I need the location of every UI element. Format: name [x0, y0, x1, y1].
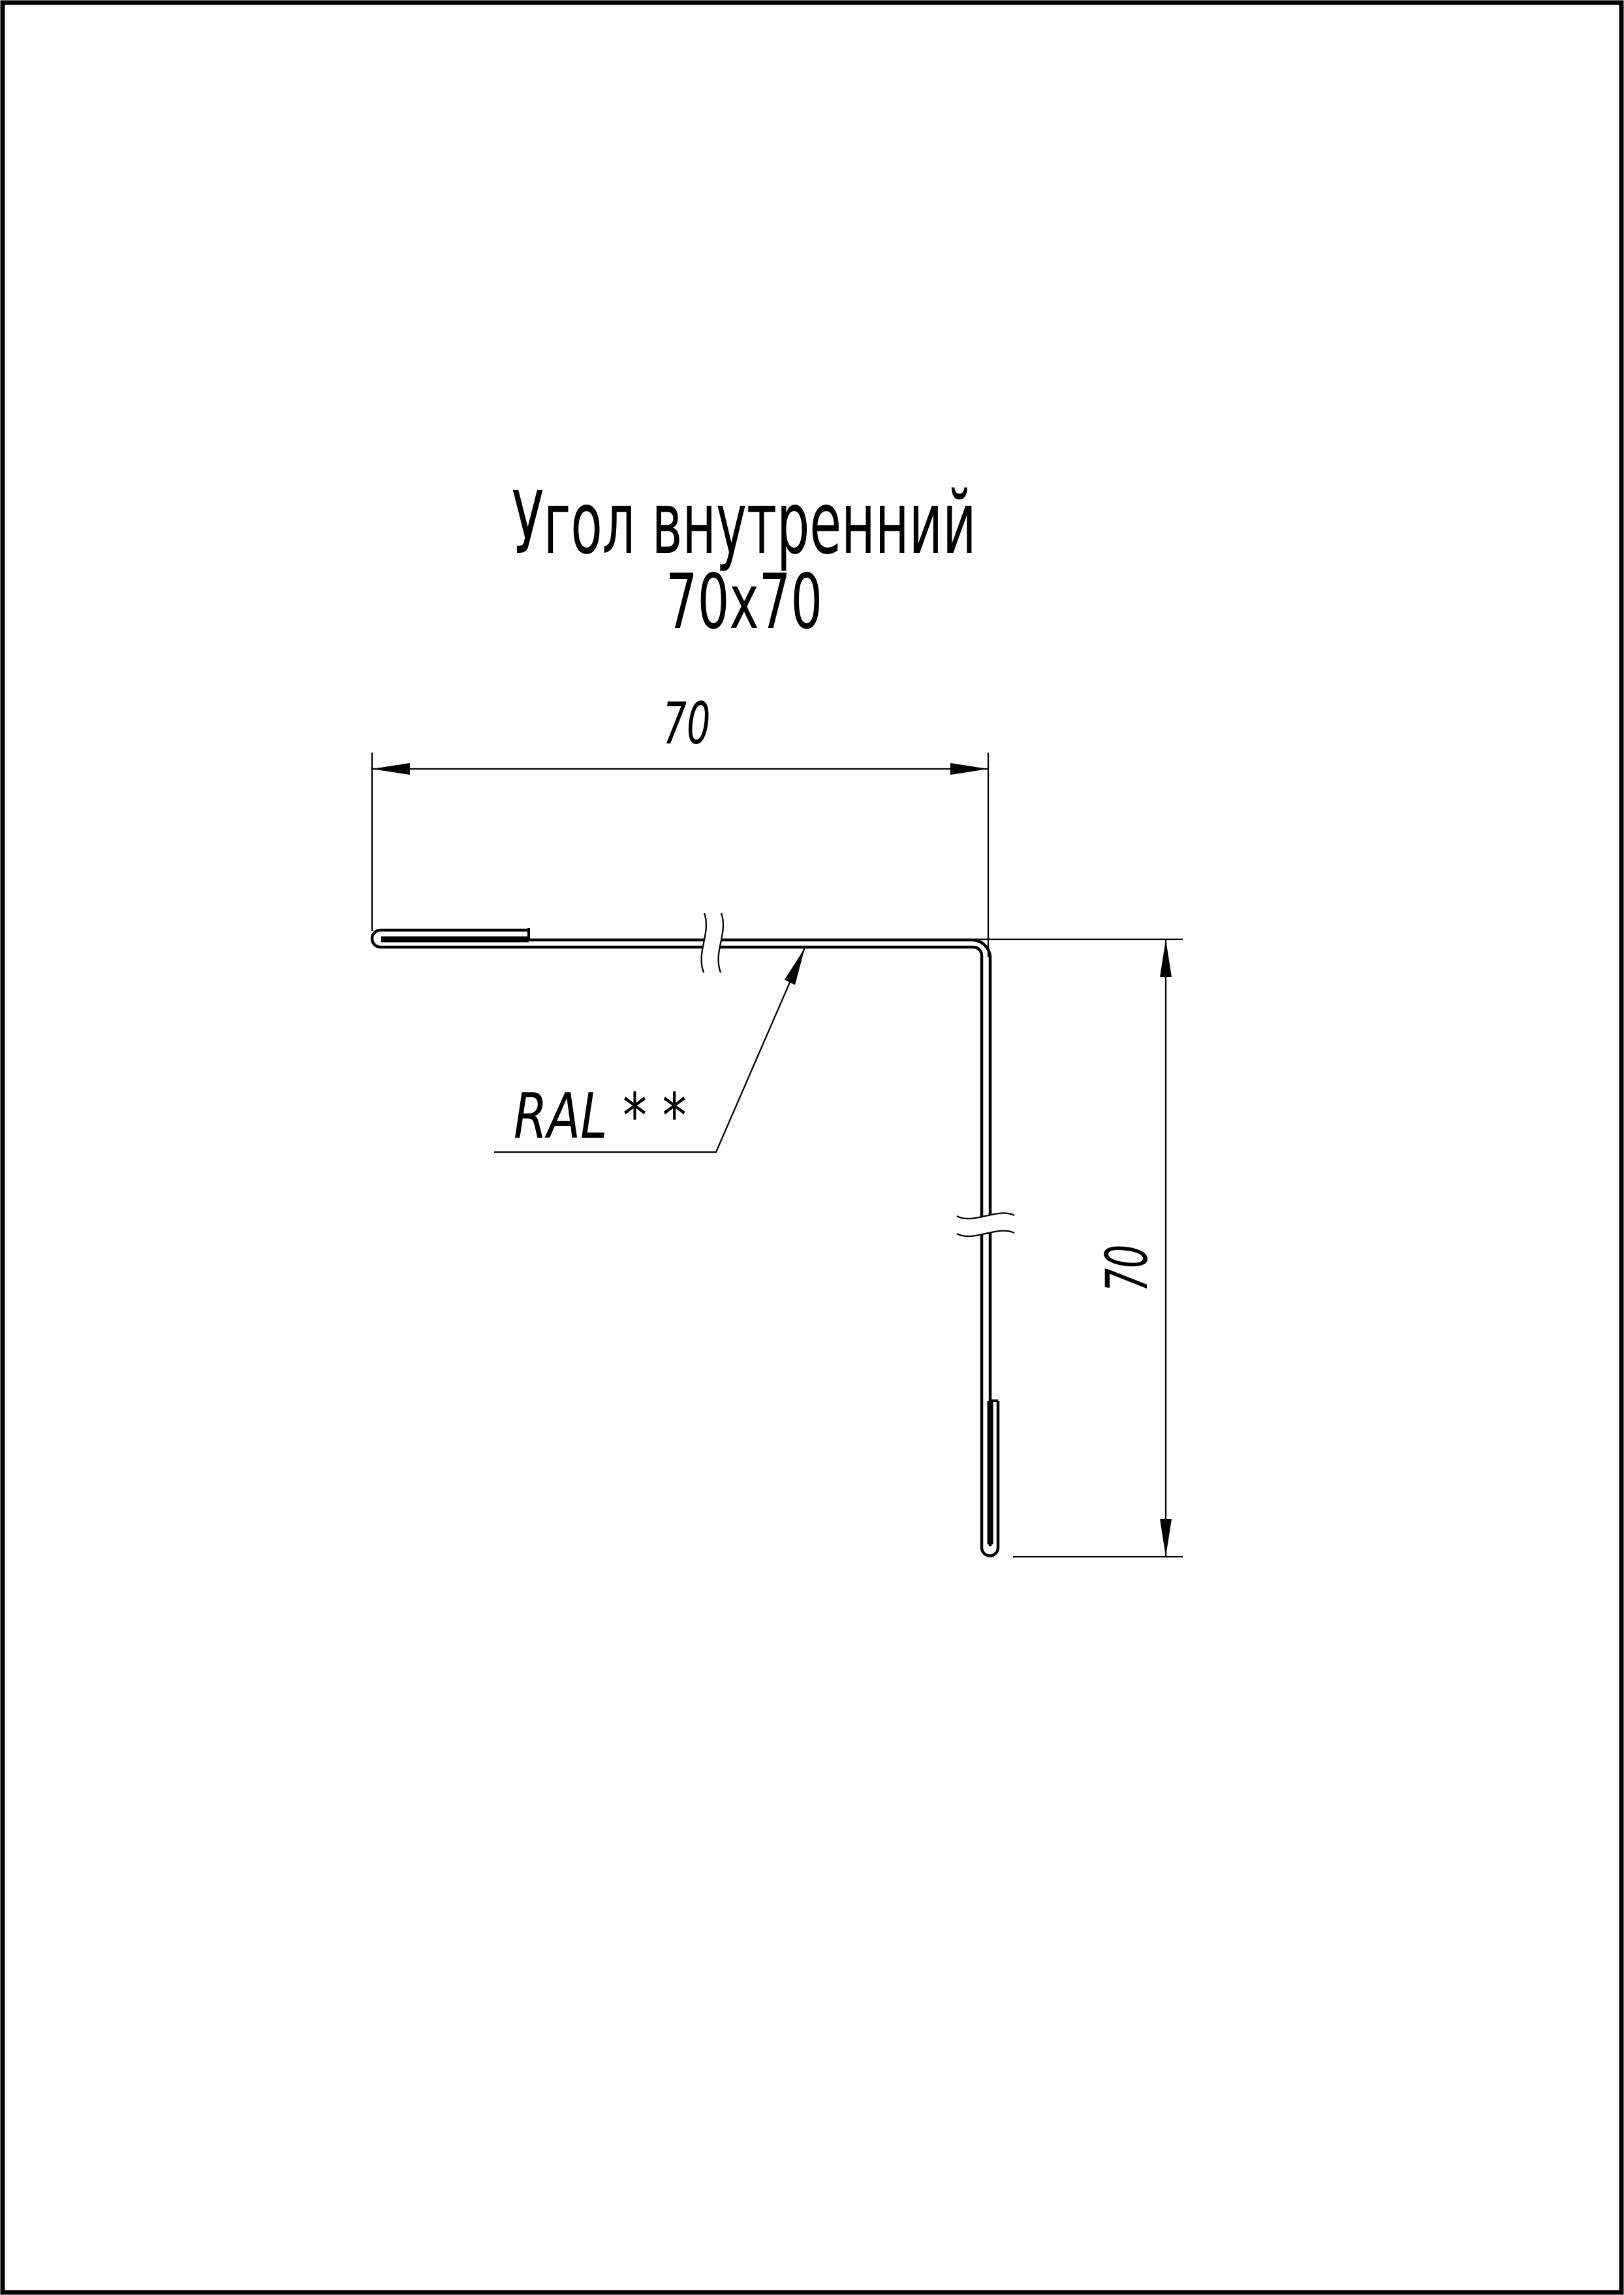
page-border	[3, 3, 1621, 2292]
break-symbols	[702, 913, 1014, 1236]
drawing-page: Угол внутренний 70х70 70 70 RAL * *	[0, 0, 1624, 2295]
arrowhead-right-icon	[950, 763, 988, 775]
arrowhead-up-icon	[1160, 939, 1172, 977]
technical-drawing	[0, 0, 1624, 2295]
dimension-value-top: 70	[663, 695, 711, 753]
corner-profile	[372, 928, 998, 1556]
leader-arrowhead-icon	[785, 948, 805, 985]
profile-inner-contour	[372, 930, 998, 1556]
arrowhead-left-icon	[372, 763, 410, 775]
profile-outer-contour	[529, 940, 990, 1546]
drawing-size-subtitle: 70х70	[666, 565, 822, 640]
dimension-lines	[372, 753, 1183, 1557]
coating-label: RAL * *	[514, 1086, 687, 1148]
arrowhead-down-icon	[1160, 1519, 1172, 1557]
drawing-title: Угол внутренний	[512, 480, 976, 567]
arrowheads	[372, 763, 1172, 1557]
dimension-value-right: 70	[1099, 1245, 1156, 1292]
